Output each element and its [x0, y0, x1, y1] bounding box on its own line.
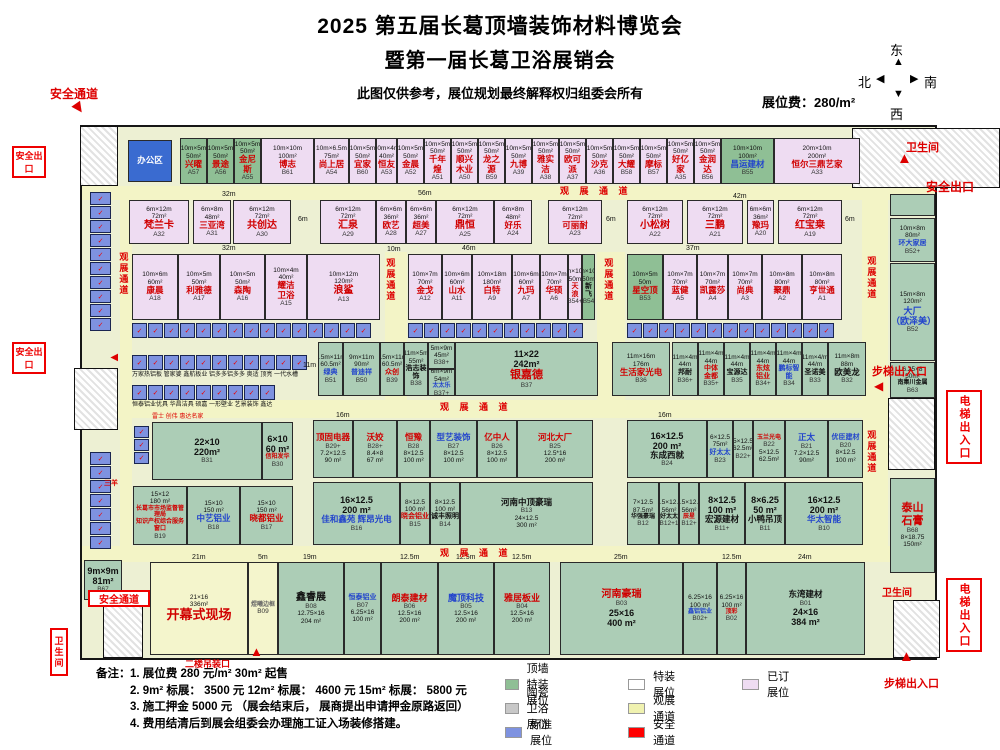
- map-label: 观 展 通 道: [440, 402, 512, 412]
- booth-A2: 10m×8m 80m²聚鼎A2: [762, 254, 802, 320]
- standard-booth-cell: ✓: [627, 323, 642, 338]
- map-label: 12.5m: [722, 554, 741, 562]
- booth-text: 长葛市市场监督管理局 知识产权综合服务窗口: [134, 506, 186, 533]
- booth-A16: 10m×5m 50m²森陶A16: [220, 254, 265, 320]
- booth-text: 东炫 铝业: [756, 365, 770, 381]
- stairwell: [852, 128, 1000, 188]
- standard-booth-cell: ✓: [340, 323, 355, 338]
- legend-column: 特装展位观展通道安全通道: [628, 672, 677, 744]
- booth-text: 6m×9m 54m²: [431, 369, 453, 383]
- booth-text: B10: [818, 525, 830, 532]
- booth-text: 辰星: [683, 514, 695, 521]
- booth-text: 6m×12m 72m²: [249, 206, 274, 221]
- standard-booth-cell: ✓: [260, 385, 275, 400]
- booth-text: 恒豫: [405, 433, 422, 443]
- standard-booth-cell: ✓: [90, 318, 111, 331]
- booth-A18: 10m×6m 60m²康晨A18: [132, 254, 178, 320]
- booth-B12: 7×12.5 87.5m²华强豪瑞B12: [627, 482, 659, 545]
- booth-text: 12.75×16 204 m²: [297, 610, 324, 625]
- booth-text: B61: [282, 169, 294, 176]
- standard-booth-cell: ✓: [90, 452, 111, 465]
- booth-B30: 6×10 60 m²信阳发华B30: [262, 422, 293, 480]
- map-label: 25m: [614, 554, 628, 562]
- booth-text: 12.5×16 200 m²: [454, 610, 478, 625]
- booth-A21: 6m×12m 72m²三鹏A21: [687, 200, 743, 244]
- booth-A22: 6m×12m 72m²小松树A22: [627, 200, 683, 244]
- standard-booth-cell: ✓: [424, 323, 439, 338]
- booth-B02: 6.25×16 100 m²顶彩B02: [717, 562, 746, 655]
- booth-text: 11m×4m 44m: [751, 350, 776, 365]
- map-label: 32m: [222, 191, 236, 199]
- booth-B55: 10m×10m 100m²昌运建材B55: [721, 138, 774, 184]
- booth-text: 诚丰照明: [431, 513, 459, 521]
- booth-text: 千年煌: [425, 155, 450, 174]
- booth-text: A3: [741, 295, 749, 302]
- booth-text: 可丽耐: [562, 221, 588, 231]
- booth-text: 魔顶科技: [448, 593, 484, 603]
- standard-booth-cell: ✓: [675, 323, 690, 338]
- booth-text: A32: [153, 231, 165, 238]
- booth-A25: 6m×12m 72m²鼎恒A25: [436, 200, 494, 244]
- booth-text: 6.25×16 100 m²: [351, 609, 375, 624]
- booth-text: A11: [451, 295, 462, 302]
- booth-text: 10m×5m 50m²: [641, 145, 666, 160]
- stairwell: [74, 368, 118, 430]
- booth-B32: 11m×8m 88m欧美龙B32: [828, 342, 866, 396]
- booth-text: A57: [188, 169, 200, 176]
- booth-text: 森陶: [234, 286, 251, 296]
- standard-booth-cell: ✓: [755, 323, 770, 338]
- booth-text: A35: [675, 174, 687, 181]
- booth-text: 宝源达: [727, 369, 748, 377]
- booth-text: 8×12.5 100 m²: [405, 499, 425, 514]
- booth-A37: 10m×5m 50m²欧可派A37: [559, 138, 586, 184]
- booth-B33: 11m×4/m 44/m圣诺美B33: [802, 342, 828, 396]
- booth-text: B34: [783, 380, 795, 387]
- booth-text: 中体 金都: [704, 365, 718, 381]
- booth-B24: 16×12.5 200 m²东成西就B24: [627, 420, 707, 478]
- booth-text: 11m×4m 44m: [777, 350, 802, 365]
- map-label: 16m: [336, 412, 350, 420]
- booth-text: B15: [409, 521, 421, 528]
- booth-text: 10m×5m 50m²: [533, 141, 558, 156]
- title-block: 2025 第五届长葛顶墙装饰材料博览会 暨第一届长葛卫浴展销会 此图仅供参考，展…: [0, 10, 1000, 102]
- booth-text: B17: [261, 524, 273, 531]
- booth-text: 超美: [412, 221, 429, 231]
- booth-B03: 河南豪瑞B0325×16 400 m²: [560, 562, 683, 655]
- booth-B29+: 顶固电器B29+7.2×12.5 90 m²: [313, 420, 353, 478]
- map-label: 37m: [686, 245, 700, 253]
- booth-text: 华太智能: [807, 515, 841, 525]
- safety-label-box: 卫生间: [50, 628, 68, 676]
- standard-booth-strip: ✓✓✓✓✓✓✓✓✓✓✓✓✓✓✓: [132, 323, 371, 338]
- page-title: 2025 第五届长葛顶墙装饰材料博览会: [0, 10, 1000, 40]
- standard-booth-cell: ✓: [180, 323, 195, 338]
- booth-text: B59: [486, 174, 498, 181]
- booth-B06: 朗泰建材B0612.5×16 200 m²: [381, 562, 438, 655]
- booth-B10: 16×12.5 200 m²华太智能B10: [785, 482, 863, 545]
- booth-text: 10m×5m 50m²: [668, 141, 693, 156]
- standard-booth-cell: ✓: [180, 355, 195, 370]
- booth-text: 亿中人: [484, 433, 510, 443]
- booth-A54: 10m×6.5m 75m²尚上居A54: [314, 138, 349, 184]
- booth-text: 6×12.5 75m²: [710, 434, 730, 449]
- booth-A24: 6m×8m 48m²好乐A24: [494, 200, 532, 244]
- map-label: 卫生间: [882, 588, 912, 600]
- booth-A13: 10m×12m 120m²浪鲨A13: [307, 254, 380, 320]
- booth-text: 好亿家: [668, 155, 693, 174]
- booth-text: 6.25×16 100 m²: [688, 594, 712, 609]
- booth-text: 24×16 384 m²: [791, 607, 820, 627]
- booth-B26: 亿中人B268×12.5 100 m²: [477, 420, 517, 478]
- booth-text: 恒友: [378, 160, 395, 170]
- standard-booth-cell: ✓: [164, 385, 179, 400]
- booth-text: 小松树: [640, 220, 670, 231]
- booth-text: B20: [840, 442, 852, 449]
- booth-text: 10m×5m 50m²: [560, 141, 585, 156]
- map-label: 6m: [845, 216, 855, 224]
- booth-A32: 6m×12m 72m²梵兰卡A32: [129, 200, 189, 244]
- booth-text: 华强豪瑞: [631, 514, 655, 521]
- booth-text: 10m×7m 70m²: [732, 271, 757, 286]
- booth-text: B32: [841, 377, 853, 384]
- standard-booth-cell: ✓: [488, 323, 503, 338]
- standard-booth-cell: ✓: [228, 323, 243, 338]
- booth-text: 4.5×12.5 56m²: [659, 499, 679, 514]
- booth-text: 晓都铝业: [249, 514, 283, 524]
- map-label: 观 展 通 道: [440, 548, 512, 558]
- booth-B02+: 6.25×16 100 m²鑫铝铝业B02+: [683, 562, 717, 655]
- notes-lines: 1. 展位费 280 元/m² 30m² 起售2. 9m² 标展： 3500 元…: [130, 666, 469, 733]
- legend-label: 安全通道: [653, 716, 677, 748]
- booth-text: 5×12.5 62.5m²: [733, 438, 753, 453]
- booth-text: 豫玛: [752, 221, 769, 231]
- booth-B22+: 5×12.5 62.5m²B22+: [733, 420, 753, 478]
- booth-text: B22: [763, 441, 775, 448]
- booth-text: B68: [907, 527, 919, 534]
- booth-text: 欧美龙: [834, 368, 860, 378]
- booth-B01: 东湾建材B0124×16 384 m²: [746, 562, 865, 655]
- booth-text: 九博: [510, 160, 527, 170]
- booth-text: 沃姣: [366, 433, 383, 443]
- note-line: 2. 9m² 标展： 3500 元 12m² 标展： 4600 元 15m² 标…: [130, 683, 469, 700]
- aisle-strip: [82, 186, 935, 200]
- standard-booth-cell: ✓: [244, 385, 259, 400]
- booth-text: A27: [415, 230, 427, 237]
- booth-text: 9m×9m 81m²: [87, 566, 118, 586]
- booth-B54: 5m×10m 50m新飞B54: [582, 254, 595, 320]
- booth-B34+: 11m×4m 44m东炫 铝业B34+: [750, 342, 776, 396]
- map-label: 46m: [462, 245, 476, 253]
- booth-text: 10m×5m 50m²: [398, 145, 423, 160]
- standard-booth-cell: ✓: [90, 522, 111, 535]
- standard-booth-cell: ✓: [244, 355, 259, 370]
- legend-item: 安全通道: [628, 720, 677, 744]
- standard-booth-cell: ✓: [132, 323, 147, 338]
- booth-text: 6m×6m 36m²: [410, 206, 432, 221]
- booth-text: 15×10 150 m²: [203, 500, 223, 515]
- booth-text: 11m×4m 44m: [699, 350, 724, 365]
- booth-text: 亨世通: [809, 286, 835, 296]
- booth-A20: 6m×6m 36m²豫玛A20: [747, 200, 774, 244]
- booth-text: 10m×4m 40m²: [376, 145, 397, 160]
- booth-text: A25: [459, 231, 471, 238]
- booth-办公区: 办公区: [128, 140, 172, 182]
- booth-text: A38: [540, 174, 552, 181]
- legend-swatch: [742, 679, 759, 690]
- booth-A53: 10m×4m 40m²恒友A53: [376, 138, 397, 184]
- booth-B14: 8×12.5 100 m²诚丰照明B14: [430, 482, 460, 545]
- standard-booth-cell: ✓: [308, 323, 323, 338]
- booth-text: A55: [242, 174, 254, 181]
- standard-booth-cell: ✓: [723, 323, 738, 338]
- booth-B58: 10m×5m 50m²大耀B58: [613, 138, 640, 184]
- booth-B52: 15m×8m 120m²大厂 （欧泽美）B52: [890, 263, 935, 361]
- booth-A1: 10m×8m 80m²亨世通A1: [802, 254, 842, 320]
- standard-booth-cell: ✓: [276, 323, 291, 338]
- legend-swatch: [628, 727, 645, 738]
- booth-text: 普迪祥: [351, 369, 372, 377]
- standard-booth-cell: ✓: [520, 323, 535, 338]
- standard-booth-cell: ✓: [164, 355, 179, 370]
- booth-text: 绿典: [324, 369, 338, 377]
- booth-A3: 10m×7m 70m²尚典A3: [728, 254, 762, 320]
- booth-text: 共创达: [247, 220, 277, 231]
- booth-B52+: 10m×8m 80m²环大家居B52+: [890, 218, 935, 262]
- booth-A36: 10m×5m 50m²沙克A36: [586, 138, 613, 184]
- booth-text: 10m×5m 50m²: [479, 141, 504, 156]
- booth-A9: 10m×18m 180m²白特A9: [472, 254, 512, 320]
- booth-text: B24: [661, 460, 673, 467]
- booth-text: 6m×8m 48m²: [502, 206, 524, 221]
- standard-booth-cell: ✓: [260, 355, 275, 370]
- booth-text: 太太乐: [432, 383, 450, 390]
- booth-text: 16×12.5 200 m²: [340, 495, 373, 515]
- booth-text: B29+: [325, 443, 340, 450]
- booth-text: 鑫睿展: [296, 592, 326, 603]
- booth-text: 10m×8m 80m²: [769, 271, 794, 286]
- booth-text: B34+: [755, 380, 770, 387]
- standard-booth-cell: ✓: [164, 323, 179, 338]
- booth-text: A33: [811, 169, 823, 176]
- booth-text: 6m×12m 72m²: [452, 206, 477, 221]
- page-subtitle: 暨第一届长葛卫浴展销会: [0, 44, 1000, 73]
- booth-text: 佳和鑫苑 辉昂光电: [321, 515, 391, 525]
- booth-text: 8×12.5 100 m²: [435, 499, 455, 514]
- booth-text: 12.5×16 200 m²: [510, 610, 534, 625]
- standard-booth-cell: ✓: [228, 355, 243, 370]
- booth-text: 正太: [798, 433, 815, 443]
- booth-text: 梵兰卡: [144, 220, 174, 231]
- booth-B50: 9m×11m 90m²普迪祥B50: [343, 342, 380, 396]
- map-label: 步梯出入口: [872, 366, 927, 379]
- booth-text: 6m×6m 36m²: [380, 206, 402, 221]
- booth-A31: 6m×8m 48m²三亚湾A31: [193, 200, 231, 244]
- booth-text: 8×12.5 100 m²: [487, 450, 507, 465]
- note-line: 4. 费用结清后到展会组委会办理施工证入场装修搭建。: [130, 716, 469, 733]
- booth-B15: 8×12.5 100 m²晓会铝业B15: [400, 482, 430, 545]
- booth-text: 8×12.5 100 m²: [708, 495, 737, 515]
- standard-booth-cell: ✓: [691, 323, 706, 338]
- booth-text: B58: [621, 169, 633, 176]
- booth-text: 15×10 150 m²: [256, 500, 276, 515]
- booth-text: 红宝桒: [795, 220, 825, 231]
- legend-column: 顶墙特装展位陶瓷卫浴展位标准展位: [505, 672, 554, 744]
- booth-text: 5m×10m 50m: [568, 268, 582, 283]
- booth-B27: 型艺装饰B278×12.5 100 m²: [430, 420, 477, 478]
- booth-B09: 煜曦边框B09: [248, 562, 278, 655]
- booth-B16: 16×12.5 200 m²佳和鑫苑 辉昂光电B16: [313, 482, 400, 545]
- booth-text: A31: [206, 230, 218, 237]
- booth-text: A13: [338, 296, 350, 303]
- booth-text: 10m×5m 50m²: [425, 141, 450, 156]
- booth-text: A37: [567, 174, 579, 181]
- booth-text: 10m×5m 50m: [632, 271, 657, 286]
- booth-text: 10m×12m 120m²: [329, 271, 358, 286]
- booth-text: 10m×5m 50m²: [186, 271, 211, 286]
- booth-text: 10m×18m 180m²: [477, 271, 506, 286]
- booth-text: 鑫铝铝业: [688, 609, 712, 616]
- standard-booth-cell: ✓: [552, 323, 567, 338]
- map-label: 三羊: [104, 480, 118, 488]
- booth-text: B06: [404, 603, 416, 610]
- booth-text: 21×16 336m²: [190, 594, 208, 609]
- map-label: 观展通道: [118, 252, 128, 296]
- booth-text: 5×12.5 62.5m²: [759, 449, 779, 464]
- map-label: 恒泰铝业优具 华昌洁具 硕嘉 一形壁业 艺景装饰 鑫达: [132, 402, 272, 409]
- standard-booth-cell: ✓: [148, 385, 163, 400]
- booth-text: A5: [676, 295, 684, 302]
- booth-text: 优臣建材: [832, 434, 860, 442]
- arrow-icon: ▲: [897, 150, 912, 167]
- booth-text: 6m×12m 72m²: [562, 206, 587, 221]
- booth-B19: 15×12 180 m²长葛市市场监督管理局 知识产权综合服务窗口B19: [133, 486, 187, 545]
- compass-arrow-down-icon: ▼: [893, 88, 904, 100]
- booth-B37: 11×22 242m²银嘉德B37: [455, 342, 598, 396]
- standard-booth-cell: ✓: [196, 355, 211, 370]
- map-label: 观展通道: [866, 430, 876, 474]
- booth-text: B13: [521, 507, 533, 514]
- booth-text: 华硕: [545, 286, 562, 296]
- compass-south: 南: [924, 72, 937, 91]
- booth-text: 10m×5m 50m²: [614, 145, 639, 160]
- booth-text: 7×12.5 87.5m²: [633, 499, 653, 514]
- booth-B23: 6×12.5 75m²好太太B23: [707, 420, 733, 478]
- booth-text: 河南豪瑞: [602, 589, 642, 600]
- booth-B51: 5.5m×11m 60.5m²绿典B51: [318, 342, 343, 396]
- booth-A17: 10m×5m 50m²利雅德A17: [178, 254, 220, 320]
- booth-text: 晓会铝业: [401, 513, 429, 521]
- booth-text: 龙之源: [479, 155, 504, 174]
- booth-text: 顶固电器: [316, 433, 350, 443]
- booth-text: 顺兴木业: [452, 155, 477, 174]
- legend-item: 标准展位: [505, 720, 554, 744]
- booth-B38: 11m×5m 55m²浩志装饰B38: [404, 342, 428, 396]
- booth-A23: 6m×12m 72m²可丽耐A23: [548, 200, 602, 244]
- booth-text: 朗泰建材: [391, 593, 427, 603]
- safety-label-box: 电梯出入口: [946, 578, 982, 652]
- booth-text: A28: [385, 230, 397, 237]
- standard-booth-cell: ✓: [739, 323, 754, 338]
- standard-booth-cell: ✓: [132, 355, 147, 370]
- standard-booth-cell: ✓: [90, 466, 111, 479]
- map-label: 12.5m: [400, 554, 419, 562]
- booth-text: 10m×4m 40m²: [273, 267, 298, 282]
- booth-A28: 6m×6m 36m²欧艺A28: [376, 200, 406, 244]
- booth-B37+: 6m×9m 54m²太太乐B37+: [428, 369, 455, 396]
- booth-text: 中艺铝业: [196, 514, 230, 524]
- standard-booth-cell: ✓: [148, 323, 163, 338]
- booth-text: 10m×5m 50m²: [350, 145, 375, 160]
- booth-text: B53: [639, 295, 651, 302]
- booth-A33: 20m×10m 200m²恒尔三鼎艺家A33: [774, 138, 860, 184]
- map-label: 42m: [733, 193, 747, 201]
- booth-B53: 10m×5m 50m星空顶B53: [627, 254, 663, 320]
- booth-text: 星空顶: [632, 286, 658, 296]
- booth-A55: 10m×5m 50m²金尼斯A55: [234, 138, 261, 184]
- booth-text: 金晨: [402, 160, 419, 170]
- map-label: 万家热铝板 管家婆 鑫航板业 铝多多铝多多 奥适 顶亮 一代水槽: [132, 372, 298, 379]
- booth-A4: 10m×7m 70m²凯露莎A4: [697, 254, 728, 320]
- booth-text: B19: [154, 533, 166, 540]
- standard-booth-cell: ✓: [787, 323, 802, 338]
- booth-text: 6.25×16 100 m²: [720, 594, 744, 609]
- booth-text: B35+: [703, 380, 718, 387]
- booth-text: 好太太: [660, 514, 678, 521]
- booth-text: A16: [237, 295, 249, 302]
- booth-text: 白特: [483, 286, 500, 296]
- map-label: 观 展 通 道: [560, 186, 632, 196]
- map-label: 16m: [658, 412, 672, 420]
- booth-text: A21: [709, 231, 721, 238]
- booth-text: 新飞: [583, 283, 594, 299]
- booth-text: B03: [616, 600, 628, 607]
- booth-B59: 10m×5m 50m²龙之源B59: [478, 138, 505, 184]
- standard-booth-cell: ✓: [134, 452, 149, 464]
- booth-text: B54+: [568, 298, 582, 305]
- map-label: 6m: [606, 216, 616, 224]
- floor-plan-page: 2025 第五届长葛顶墙装饰材料博览会 暨第一届长葛卫浴展销会 此图仅供参考，展…: [0, 0, 1000, 750]
- booth-text: 雅实洁: [533, 155, 558, 174]
- booth-B17: 15×10 150 m²晓都铝业B17: [240, 486, 293, 545]
- booth-text: B57: [648, 169, 660, 176]
- booth-text: A50: [459, 174, 471, 181]
- booth-text: 型艺装饰: [436, 433, 470, 443]
- booth-A7: 10m×6m 60m²九玛A7: [512, 254, 540, 320]
- booth-B08: 鑫睿展B0812.75×16 204 m²: [278, 562, 344, 655]
- booth-text: B31: [201, 457, 213, 464]
- booth-text: 河北大厂: [538, 433, 572, 443]
- booth-text: 6m×8m 48m²: [201, 206, 223, 221]
- standard-booth-cell: ✓: [568, 323, 583, 338]
- booth-text: 11m×4m 44m: [725, 354, 750, 369]
- booth-B35: 11m×4m 44m宝源达B35: [724, 342, 750, 396]
- standard-booth-strip: ✓✓✓✓✓✓✓: [90, 452, 111, 549]
- standard-booth-cell: ✓: [292, 323, 307, 338]
- booth-text: 11m×8m 88m: [835, 353, 860, 368]
- booth-text: 6m×12m 72m²: [642, 206, 667, 221]
- legend-swatch: [628, 679, 645, 690]
- booth-text: 6m×12m 72m²: [702, 206, 727, 221]
- map-label: 观展通道: [385, 258, 395, 302]
- booth-B22: 玉兰光电B225×12.5 62.5m²: [753, 420, 785, 478]
- booth-text: B23: [714, 457, 726, 464]
- standard-booth-cell: ✓: [244, 323, 259, 338]
- booth-A12: 10m×7m 70m²金戈A12: [408, 254, 442, 320]
- map-label: 6m: [298, 216, 308, 224]
- booth-text: B08: [305, 603, 317, 610]
- booth-text: 6m×12m 72m²: [146, 206, 171, 221]
